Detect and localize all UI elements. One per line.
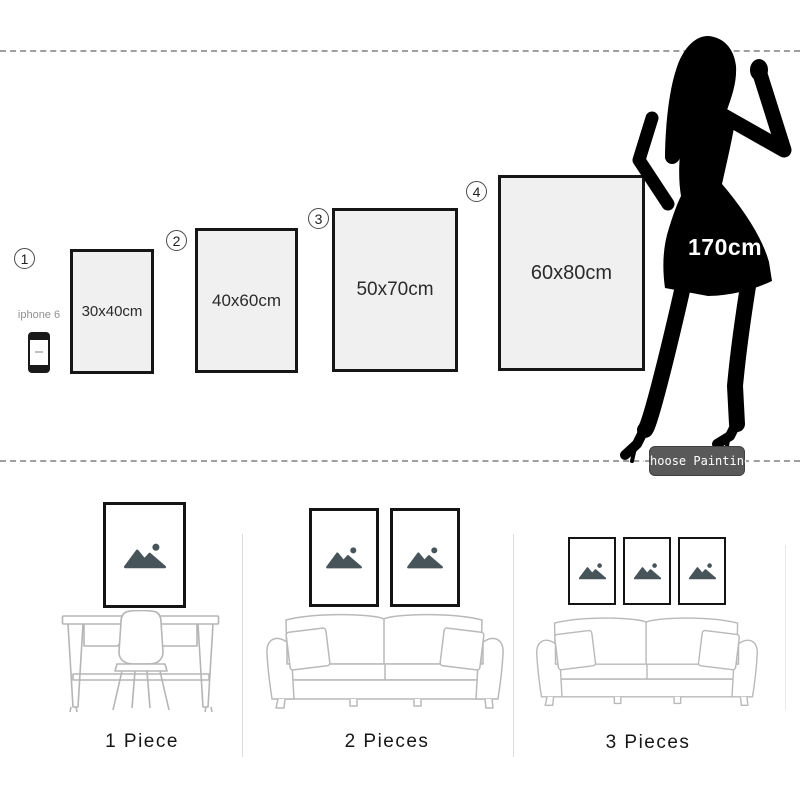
arrangement-label-3: 3 Pieces <box>568 732 728 754</box>
image-placeholder-icon <box>689 562 716 580</box>
image-placeholder-icon <box>579 562 606 580</box>
divider-1 <box>242 534 243 757</box>
arrangement-label-1: 1 Piece <box>62 731 222 753</box>
image-placeholder-icon <box>124 542 166 569</box>
size-option-1-number: 1 <box>14 248 35 269</box>
art-frame-trio-right <box>678 537 726 605</box>
image-placeholder-icon <box>634 562 661 580</box>
image-placeholder-icon <box>326 546 362 569</box>
number-2: 2 <box>173 233 181 249</box>
size-frame-30x40: 30x40cm <box>70 249 154 374</box>
size-label-50x70: 50x70cm <box>356 279 433 301</box>
art-frame-pair-right <box>390 508 460 607</box>
art-frame-trio-center <box>623 537 671 605</box>
choose-painting-button[interactable]: Choose Painting <box>649 446 745 476</box>
person-height-label: 170cm <box>688 234 762 261</box>
size-frame-50x70: 50x70cm <box>332 208 458 372</box>
size-option-4-number: 4 <box>466 181 487 202</box>
size-label-30x40: 30x40cm <box>82 303 143 320</box>
divider-2 <box>513 534 514 757</box>
art-frame-pair-left <box>309 508 379 607</box>
iphone-screen-text <box>35 351 43 353</box>
arrangement-label-2: 2 Pieces <box>307 731 467 753</box>
size-option-2-number: 2 <box>166 230 187 251</box>
sofa-icon <box>262 606 508 712</box>
number-4: 4 <box>473 184 481 200</box>
divider-3 <box>785 545 786 710</box>
fist <box>750 59 768 81</box>
iphone-label: iphone 6 <box>9 309 69 321</box>
sofa-icon <box>532 610 762 709</box>
image-placeholder-icon <box>407 546 443 569</box>
art-frame-single <box>103 502 186 608</box>
number-3: 3 <box>315 211 323 227</box>
size-frame-40x60: 40x60cm <box>195 228 298 373</box>
size-option-3-number: 3 <box>308 208 329 229</box>
iphone-icon <box>28 332 50 373</box>
size-guide-infographic: 1 2 3 4 iphone 6 30x40cm 40x60cm 50x70cm… <box>0 0 800 800</box>
size-label-60x80: 60x80cm <box>531 262 612 285</box>
size-label-40x60: 40x60cm <box>212 291 281 311</box>
number-1: 1 <box>21 251 29 267</box>
art-frame-trio-left <box>568 537 616 605</box>
desk-chair-icon <box>56 610 226 715</box>
